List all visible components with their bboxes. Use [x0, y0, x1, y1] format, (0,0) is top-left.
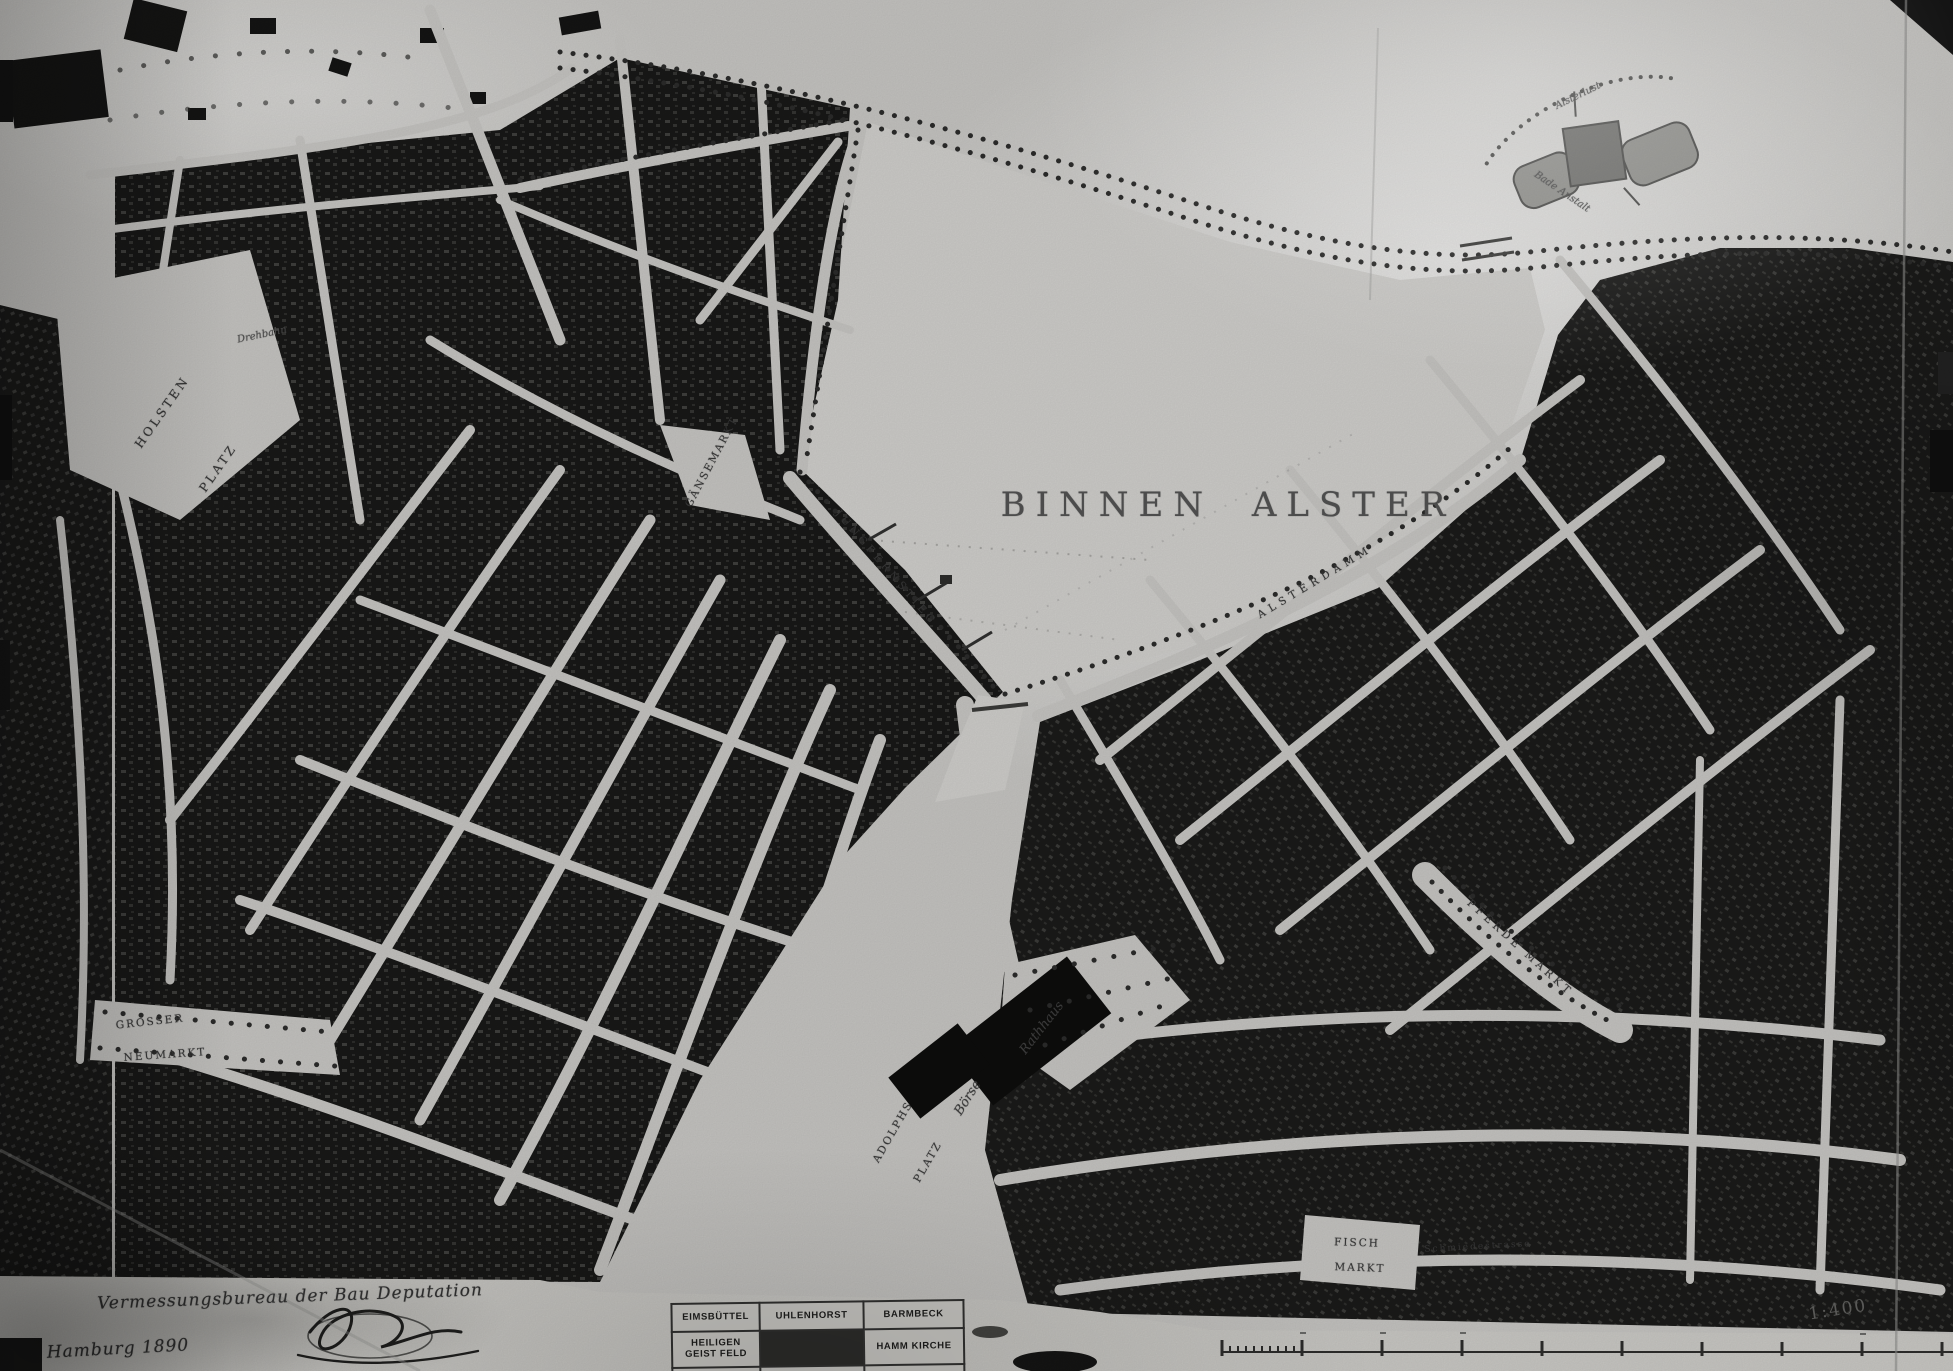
index-cell-barmbeck: BARMBECK — [863, 1300, 963, 1329]
index-cell-eimsbuettel: EIMSBÜTTEL — [671, 1303, 759, 1332]
index-cell-current-sheet — [760, 1329, 864, 1366]
index-cell-heiligen-geist-feld: HEILIGEN GEIST FELD — [672, 1331, 760, 1368]
index-row-1: EIMSBÜTTEL UHLENHORST BARMBECK — [671, 1300, 963, 1332]
map-photo: BINNEN ALSTER HOLSTEN PLATZ Drehbahn GÄN… — [0, 0, 1953, 1371]
index-key-table: EIMSBÜTTEL UHLENHORST BARMBECK HEILIGEN … — [670, 1299, 965, 1371]
index-cell-cutoff-1 — [672, 1367, 760, 1371]
index-cell-cutoff-2 — [760, 1365, 864, 1371]
index-cell-cutoff-3 — [864, 1364, 964, 1371]
index-row-2: HEILIGEN GEIST FELD HAMM KIRCHE — [672, 1328, 964, 1368]
index-cell-uhlenhorst: UHLENHORST — [759, 1301, 863, 1330]
map-canvas — [0, 0, 1953, 1371]
index-cell-hamm-kirche: HAMM KIRCHE — [864, 1328, 964, 1365]
film-grain — [0, 0, 1953, 1371]
